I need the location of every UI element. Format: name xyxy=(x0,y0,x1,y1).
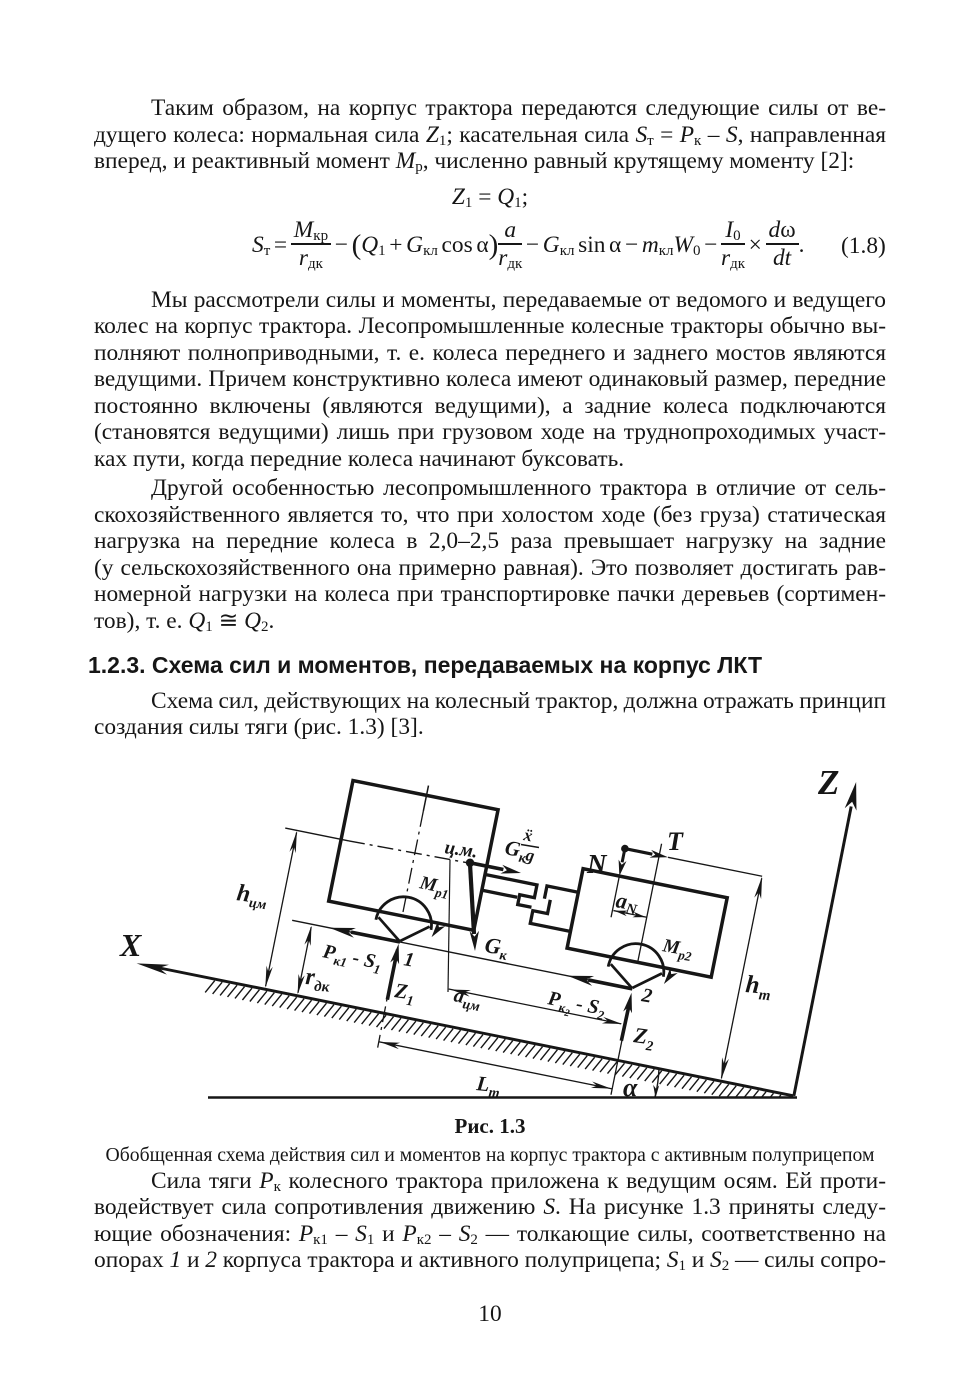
svg-text:g: g xyxy=(523,845,536,865)
svg-text:rдк: rдк xyxy=(304,964,331,996)
svg-text:T: T xyxy=(667,827,684,856)
svg-text:Mр2: Mр2 xyxy=(660,935,695,964)
svg-text:X: X xyxy=(119,927,142,963)
svg-text:aцм: aцм xyxy=(451,984,483,1015)
svg-text:Pк2 - S2: Pк2 - S2 xyxy=(544,987,608,1026)
svg-text:α: α xyxy=(623,1073,638,1102)
svg-text:Z1: Z1 xyxy=(392,978,417,1010)
svg-text:Z: Z xyxy=(817,763,839,802)
svg-text:hцм: hцм xyxy=(235,880,270,913)
svg-text:ẍ: ẍ xyxy=(521,825,534,845)
svg-text:Mр1: Mр1 xyxy=(416,872,451,902)
svg-text:1: 1 xyxy=(402,948,416,971)
svg-text:hт: hт xyxy=(744,971,772,1004)
svg-text:Z2: Z2 xyxy=(631,1022,656,1055)
svg-text:2: 2 xyxy=(639,984,654,1008)
svg-text:Pк1 - S1: Pк1 - S1 xyxy=(319,940,383,977)
svg-text:N: N xyxy=(586,849,608,879)
